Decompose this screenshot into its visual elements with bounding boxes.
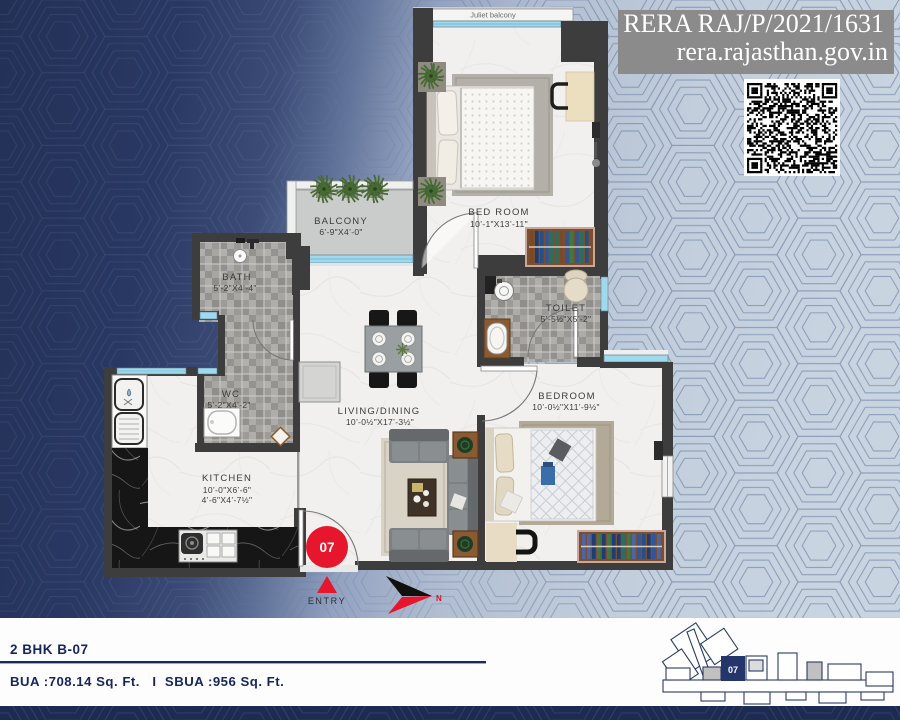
svg-text:LIVING/DINING: LIVING/DINING xyxy=(338,406,421,417)
svg-text:TOILET: TOILET xyxy=(546,303,586,314)
svg-text:5’-2"X4’-4": 5’-2"X4’-4" xyxy=(213,283,256,293)
svg-text:2 BHK B-07: 2 BHK B-07 xyxy=(10,642,89,657)
svg-text:BED ROOM: BED ROOM xyxy=(468,207,529,218)
svg-text:10’-0½"X11’-9½": 10’-0½"X11’-9½" xyxy=(532,402,600,412)
svg-text:rera.rajasthan.gov.in: rera.rajasthan.gov.in xyxy=(677,37,888,66)
svg-text:4’-6"X4’-7½": 4’-6"X4’-7½" xyxy=(202,495,253,505)
svg-text:RERA RAJ/P/2021/1631: RERA RAJ/P/2021/1631 xyxy=(623,9,884,38)
svg-text:10’-1"X13’-11": 10’-1"X13’-11" xyxy=(470,219,528,229)
svg-text:5’-5½"X5’-2": 5’-5½"X5’-2" xyxy=(541,314,592,324)
svg-text:10’-0½"X17’-3½": 10’-0½"X17’-3½" xyxy=(346,417,414,427)
svg-text:6’-9"X4’-0": 6’-9"X4’-0" xyxy=(319,227,362,237)
svg-text:BATH: BATH xyxy=(222,272,251,283)
svg-text:ENTRY: ENTRY xyxy=(308,596,346,606)
svg-text:BALCONY: BALCONY xyxy=(314,216,368,227)
svg-text:N: N xyxy=(436,594,442,603)
svg-text:07: 07 xyxy=(319,540,334,555)
svg-text:WC: WC xyxy=(222,389,240,400)
svg-text:07: 07 xyxy=(728,665,738,675)
svg-text:5’-2"X4’-2": 5’-2"X4’-2" xyxy=(207,400,250,410)
svg-text:KITCHEN: KITCHEN xyxy=(202,473,252,484)
svg-text:Juliet balcony: Juliet balcony xyxy=(470,11,516,20)
svg-text:10’-0"X6’-6": 10’-0"X6’-6" xyxy=(203,485,251,495)
svg-text:BUA :708.14 Sq. Ft. I SBUA: BUA :708.14 Sq. Ft. I SBUA :956 Sq. Ft. xyxy=(10,674,284,689)
svg-text:BEDROOM: BEDROOM xyxy=(538,391,596,402)
